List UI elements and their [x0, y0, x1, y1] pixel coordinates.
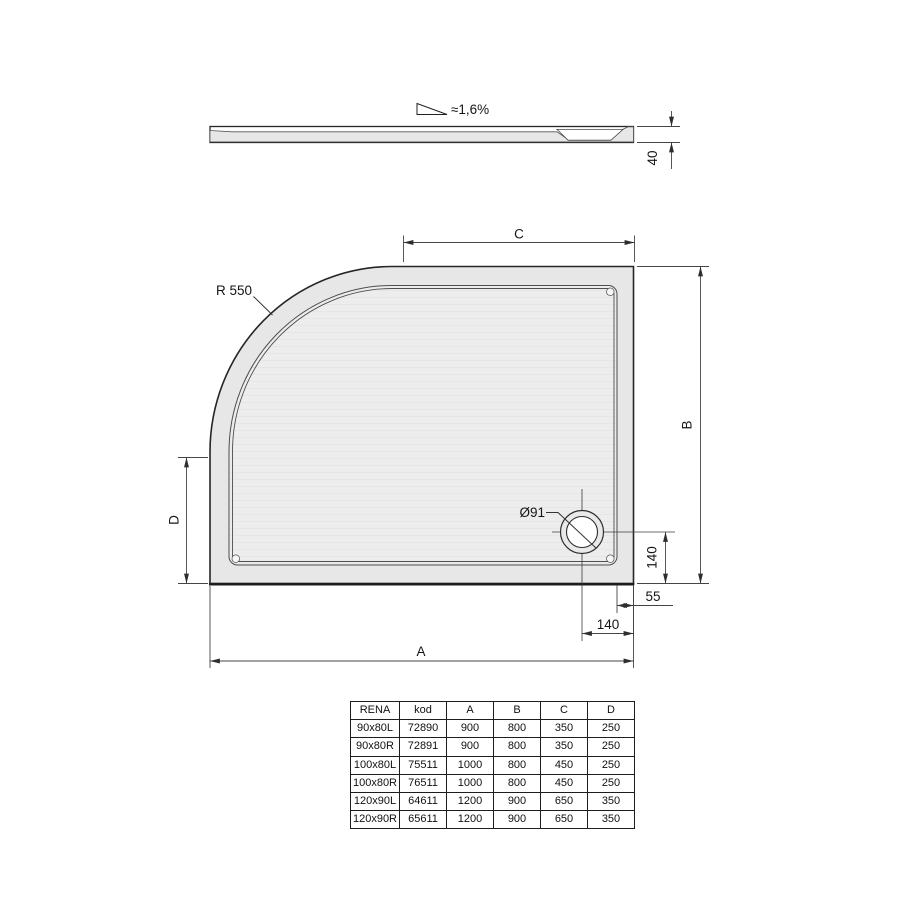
value-cell: 800 [494, 720, 541, 738]
table-header-rena: RENA [351, 702, 400, 720]
value-cell: 650 [541, 793, 588, 811]
value-cell: 1000 [447, 774, 494, 792]
spec-table-head: RENAkodABCD [351, 702, 635, 720]
model-cell: 120x90L [351, 793, 400, 811]
model-cell: 90x80R [351, 738, 400, 756]
table-row: 90x80L72890900800350250 [351, 720, 635, 738]
value-cell: 250 [588, 774, 635, 792]
value-cell: 250 [588, 756, 635, 774]
value-cell: 900 [447, 720, 494, 738]
table-row: 120x90R656111200900650350 [351, 811, 635, 829]
rim-corner-bead-top-right [607, 288, 615, 296]
model-cell: 90x80L [351, 720, 400, 738]
value-cell: 450 [541, 756, 588, 774]
value-cell: 250 [588, 738, 635, 756]
spec-table-body: 90x80L7289090080035025090x80R72891900800… [351, 720, 635, 829]
profile-view: ≈1,6% 40 [210, 102, 680, 169]
value-cell: 1000 [447, 756, 494, 774]
table-row: 100x80L755111000800450250 [351, 756, 635, 774]
table-header-c: C [541, 702, 588, 720]
dim-drain-from-bottom-label: 140 [645, 546, 660, 569]
table-header-a: A [447, 702, 494, 720]
model-cell: 120x90R [351, 811, 400, 829]
dim-b-label: B [680, 420, 695, 429]
table-header-kod: kod [400, 702, 447, 720]
value-cell: 64611 [400, 793, 447, 811]
value-cell: 250 [588, 720, 635, 738]
drain-inner-circle [567, 517, 598, 548]
value-cell: 350 [541, 720, 588, 738]
value-cell: 800 [494, 756, 541, 774]
table-row: 90x80R72891900800350250 [351, 738, 635, 756]
value-cell: 800 [494, 738, 541, 756]
table-row: 120x90L646111200900650350 [351, 793, 635, 811]
dim-d [178, 458, 208, 584]
value-cell: 75511 [400, 756, 447, 774]
value-cell: 800 [494, 774, 541, 792]
value-cell: 72891 [400, 738, 447, 756]
dim-a-label: A [416, 644, 425, 659]
profile-drain-recess [557, 129, 623, 140]
dim-d-label: D [167, 515, 182, 525]
table-header-b: B [494, 702, 541, 720]
value-cell: 350 [588, 793, 635, 811]
model-cell: 100x80L [351, 756, 400, 774]
rim-corner-bead-bottom-right [607, 555, 615, 563]
table-row: 100x80R765111000800450250 [351, 774, 635, 792]
dim-rim-width-label: 55 [645, 589, 660, 604]
table-header-row: RENAkodABCD [351, 702, 635, 720]
height-dim-label: 40 [645, 150, 660, 165]
value-cell: 65611 [400, 811, 447, 829]
value-cell: 1200 [447, 793, 494, 811]
value-cell: 72890 [400, 720, 447, 738]
rim-corner-bead-bottom-left [232, 555, 240, 563]
value-cell: 350 [588, 811, 635, 829]
table-header-d: D [588, 702, 635, 720]
radius-leader-line [254, 297, 273, 316]
slope-triangle-icon [417, 104, 447, 115]
spec-table: RENAkodABCD 90x80L7289090080035025090x80… [350, 701, 635, 829]
drain-diameter-label: Ø91 [519, 505, 545, 520]
value-cell: 900 [494, 811, 541, 829]
rim-inner-line-outer [229, 286, 617, 566]
dim-b [637, 267, 709, 584]
technical-drawing-page: ≈1,6% 40 R 550 Ø91 [0, 0, 900, 900]
model-cell: 100x80R [351, 774, 400, 792]
value-cell: 900 [447, 738, 494, 756]
value-cell: 350 [541, 738, 588, 756]
value-cell: 450 [541, 774, 588, 792]
value-cell: 1200 [447, 811, 494, 829]
dim-c-label: C [514, 227, 524, 242]
dim-drain-from-right-label: 140 [597, 617, 620, 632]
value-cell: 900 [494, 793, 541, 811]
radius-label: R 550 [216, 283, 252, 298]
plan-view: R 550 Ø91 C B D [167, 227, 710, 669]
value-cell: 76511 [400, 774, 447, 792]
slope-label: ≈1,6% [451, 102, 489, 117]
value-cell: 650 [541, 811, 588, 829]
